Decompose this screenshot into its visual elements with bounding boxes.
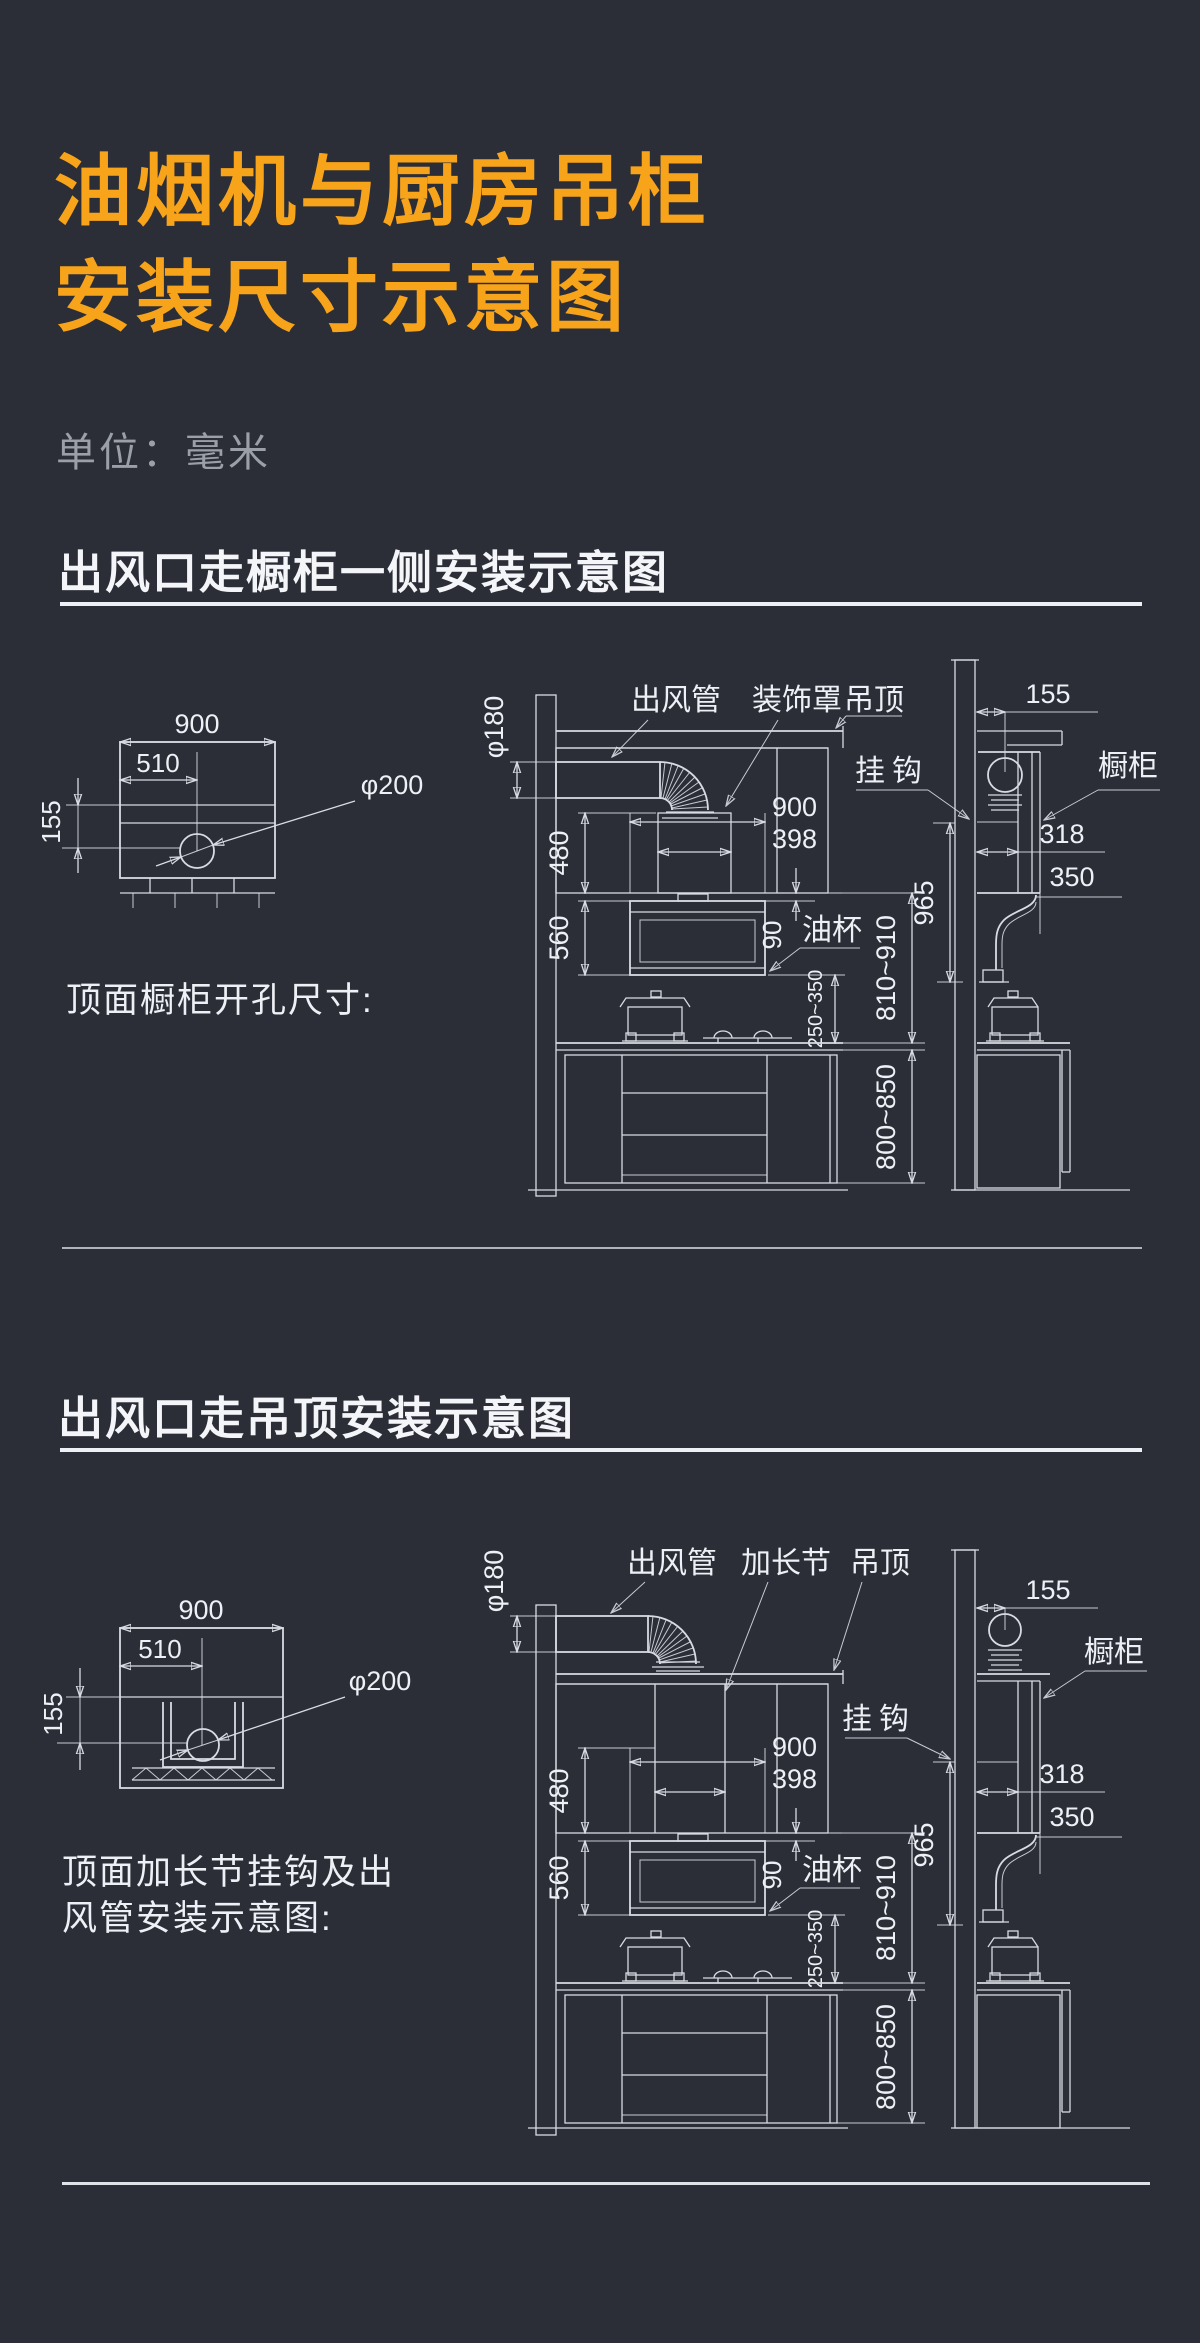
side-view: 155 橱柜 318 350 xyxy=(951,1550,1147,2128)
title-line1: 油烟机与厨房吊柜 xyxy=(54,147,710,235)
oilcup-label: 油杯 xyxy=(802,914,862,947)
dim-800-850: 800~850 xyxy=(871,2004,901,2110)
mini-cutout-diagram: 900 510 155 φ200 顶面橱柜开孔尺寸: xyxy=(36,709,423,1020)
mini-dim-510: 510 xyxy=(136,748,179,778)
hood-side-profile xyxy=(979,895,1036,982)
dim-side155: 155 xyxy=(1025,679,1070,709)
dim-318: 318 xyxy=(1039,1759,1084,1789)
mini-cutout-diagram: 900 510 155 φ200 顶面加长节挂钩及出 风管安装示意图: xyxy=(38,1595,411,1938)
dim-480: 480 xyxy=(544,1768,574,1813)
dim-d180: φ180 xyxy=(479,696,509,759)
section2-header: 出风口走吊顶安装示意图 xyxy=(58,1382,575,1447)
section1-underline xyxy=(60,602,1142,606)
mini-dim-155: 155 xyxy=(38,1692,68,1735)
dim-810-910: 810~910 xyxy=(871,1855,901,1961)
cooking-pot xyxy=(620,991,690,1041)
dim-560: 560 xyxy=(544,1855,574,1900)
gas-burners xyxy=(703,1031,792,1043)
unit-label: 单位：毫米 xyxy=(56,420,271,478)
exhaust-duct xyxy=(556,1616,648,1652)
section2-drawing: 900 510 155 φ200 顶面加长节挂钩及出 风管安装示意图: xyxy=(0,1470,1200,2150)
page-title: 油烟机与厨房吊柜安装尺寸示意图 xyxy=(54,138,710,350)
brick-wall xyxy=(955,1550,975,2128)
oilcup-label: 油杯 xyxy=(802,1854,862,1887)
cooking-pot xyxy=(620,1931,690,1981)
dim-965: 965 xyxy=(909,1822,939,1867)
dim-560: 560 xyxy=(544,915,574,960)
mini-dim-155: 155 xyxy=(36,800,66,843)
dim-810-910: 810~910 xyxy=(871,915,901,1021)
range-hood xyxy=(630,1834,765,1915)
cabinet-label: 橱柜 xyxy=(1084,1636,1144,1669)
dim-900: 900 xyxy=(772,792,817,822)
exhaust-duct xyxy=(556,762,660,798)
brick-wall xyxy=(955,660,975,1190)
mini-dim-900: 900 xyxy=(174,709,219,739)
bottom-separator xyxy=(62,2182,1150,2185)
base-cabinet-side xyxy=(977,1055,1060,1188)
dim-318: 318 xyxy=(1039,819,1084,849)
dim-250-350: 250~350 xyxy=(805,1910,827,1988)
dim-398: 398 xyxy=(772,824,817,854)
ceiling-label: 吊顶 xyxy=(850,1547,910,1580)
mini-dim-d200: φ200 xyxy=(361,770,424,800)
chimney-cover xyxy=(658,813,731,893)
dim-398: 398 xyxy=(772,1764,817,1794)
duct-label: 出风管 xyxy=(631,684,721,717)
mini-caption: 顶面橱柜开孔尺寸: xyxy=(66,981,374,1020)
cabinet-label: 橱柜 xyxy=(1098,750,1158,783)
height-dimensions: 810~910 800~850 965 xyxy=(830,823,963,1183)
mini-dim-d200: φ200 xyxy=(349,1666,412,1696)
cooking-pot xyxy=(986,991,1044,1041)
range-hood xyxy=(630,894,765,975)
dim-90: 90 xyxy=(757,921,787,950)
base-cabinet-side xyxy=(977,1995,1060,2128)
mini-dim-510: 510 xyxy=(138,1634,181,1664)
base-cabinet xyxy=(565,1055,837,1183)
hook-label: 挂钩 xyxy=(842,1703,916,1736)
base-cabinet xyxy=(565,1995,837,2123)
section2-underline xyxy=(60,1448,1142,1452)
cover-label: 装饰罩 xyxy=(752,684,842,717)
duct-label: 出风管 xyxy=(627,1547,717,1580)
section1-drawing: 900 510 155 φ200 顶面橱柜开孔尺寸: xyxy=(0,610,1200,1260)
dim-90: 90 xyxy=(757,1861,787,1890)
mini-dim-900: 900 xyxy=(178,1595,223,1625)
dim-900: 900 xyxy=(772,1732,817,1762)
cooking-pot xyxy=(986,1931,1044,1981)
dim-350: 350 xyxy=(1049,1802,1094,1832)
hook-label: 挂钩 xyxy=(855,755,929,788)
dim-480: 480 xyxy=(544,830,574,875)
dim-965: 965 xyxy=(909,880,939,925)
dim-800-850: 800~850 xyxy=(871,1064,901,1170)
title-line2: 安装尺寸示意图 xyxy=(54,253,628,341)
elevation-view: 出风管 装饰罩 吊顶 φ180 480 560 900 398 xyxy=(479,684,904,1196)
mini-caption-line1: 顶面加长节挂钩及出 xyxy=(62,1853,395,1892)
dim-250-350: 250~350 xyxy=(805,970,827,1048)
gas-burners xyxy=(703,1971,792,1983)
mini-caption-line2: 风管安装示意图: xyxy=(62,1899,333,1938)
dim-350: 350 xyxy=(1049,862,1094,892)
height-dimensions: 810~910 800~850 965 xyxy=(830,1762,963,2123)
dim-side155: 155 xyxy=(1025,1575,1070,1605)
hood-side-profile xyxy=(979,1835,1036,1922)
dim-d180: φ180 xyxy=(479,1550,509,1613)
extension-label: 加长节 xyxy=(741,1547,831,1580)
section-separator xyxy=(62,1247,1142,1249)
ceiling-label: 吊顶 xyxy=(844,684,904,717)
section1-header: 出风口走橱柜一侧安装示意图 xyxy=(58,536,669,601)
